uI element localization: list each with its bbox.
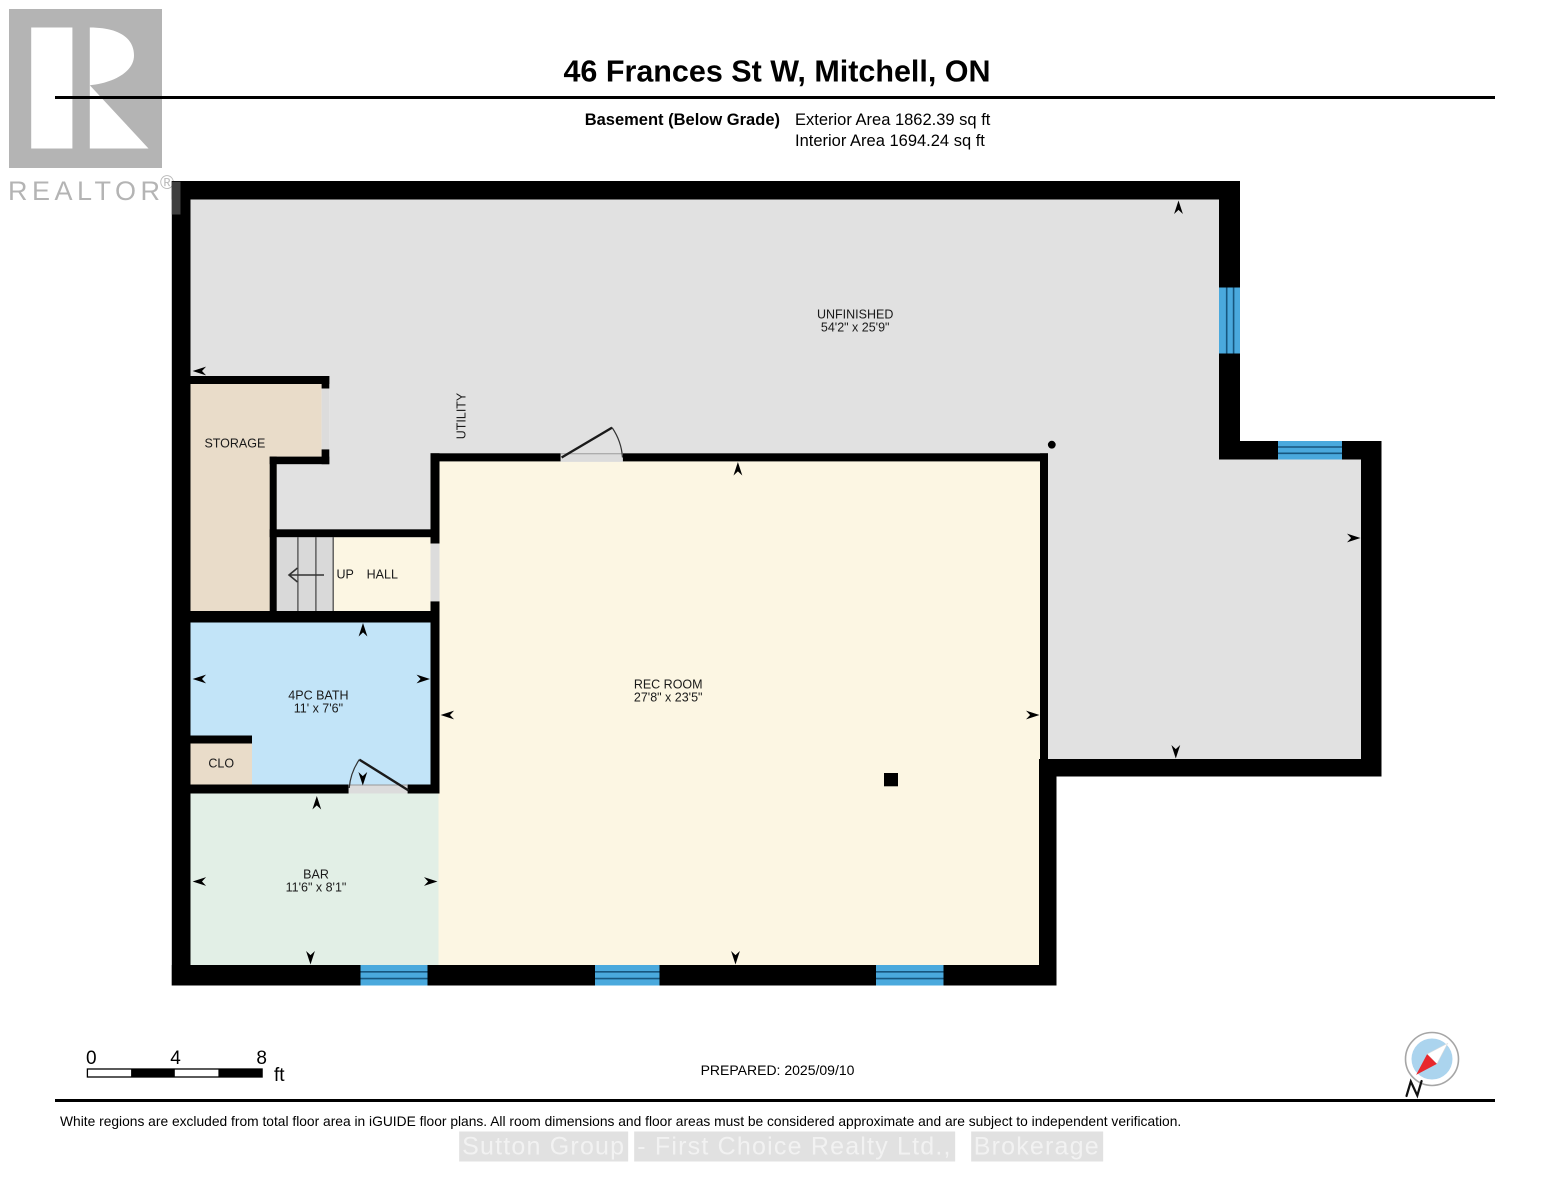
svg-text:8: 8	[256, 1048, 267, 1069]
svg-text:4: 4	[170, 1048, 181, 1069]
svg-text:0: 0	[86, 1048, 97, 1069]
svg-text:ft: ft	[274, 1065, 285, 1086]
svg-text:REALTOR: REALTOR	[8, 176, 165, 206]
